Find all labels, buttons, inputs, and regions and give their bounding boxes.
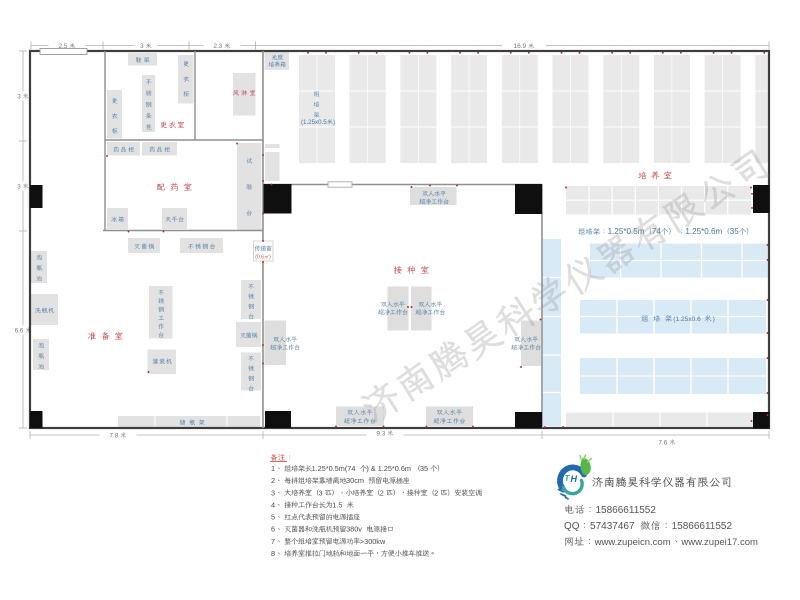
svg-text:35: 35 — [420, 464, 428, 473]
svg-text:4: 4 — [271, 500, 275, 509]
svg-text:(0.6: (0.6 — [255, 255, 264, 261]
svg-text:2: 2 — [380, 488, 384, 497]
svg-text:6: 6 — [271, 525, 275, 534]
svg-text:3: 3 — [17, 183, 21, 190]
svg-text:): ) — [333, 119, 335, 126]
svg-text:H: H — [571, 474, 578, 484]
svg-text:www.zupeicn.com: www.zupeicn.com — [594, 537, 671, 548]
svg-text:(1.25x0.5: (1.25x0.5 — [301, 119, 327, 126]
svg-text:(1.25x0.6: (1.25x0.6 — [673, 316, 701, 323]
svg-text:30cm: 30cm — [346, 476, 364, 485]
svg-text:1.25*0.5m(74: 1.25*0.5m(74 — [312, 464, 356, 473]
svg-text:QQ: QQ — [564, 521, 580, 532]
svg-text:3: 3 — [271, 488, 275, 497]
svg-text:2: 2 — [271, 476, 275, 485]
svg-text:): ) — [713, 316, 715, 323]
svg-text:>300kw: >300kw — [360, 537, 386, 546]
svg-text:3: 3 — [17, 93, 21, 100]
svg-text:2: 2 — [434, 488, 438, 497]
svg-text:1.5: 1.5 — [332, 500, 342, 509]
svg-text:7: 7 — [271, 537, 275, 546]
svg-text:2.3: 2.3 — [213, 43, 222, 50]
svg-text:3: 3 — [318, 488, 322, 497]
svg-text:380v: 380v — [346, 525, 362, 534]
svg-text:9.3: 9.3 — [376, 430, 385, 437]
svg-text:1.25*0.6m: 1.25*0.6m — [685, 227, 722, 236]
svg-text:7.8: 7.8 — [109, 432, 118, 439]
svg-text:35: 35 — [730, 227, 740, 236]
svg-text:1: 1 — [271, 464, 275, 473]
svg-text:3: 3 — [140, 43, 144, 50]
svg-text:15866611552: 15866611552 — [596, 505, 657, 516]
svg-text:) & 1.25*0.6m: ) & 1.25*0.6m — [366, 464, 411, 473]
svg-text:57437467: 57437467 — [590, 521, 635, 532]
svg-text:8: 8 — [271, 549, 275, 558]
svg-text:15866611552: 15866611552 — [672, 521, 733, 532]
svg-text:16.9: 16.9 — [514, 43, 527, 50]
svg-text:6.6: 6.6 — [15, 327, 24, 334]
svg-text:7.6: 7.6 — [658, 439, 667, 446]
svg-text:5: 5 — [271, 513, 275, 522]
svg-text:www.zupei17.com: www.zupei17.com — [680, 537, 758, 548]
